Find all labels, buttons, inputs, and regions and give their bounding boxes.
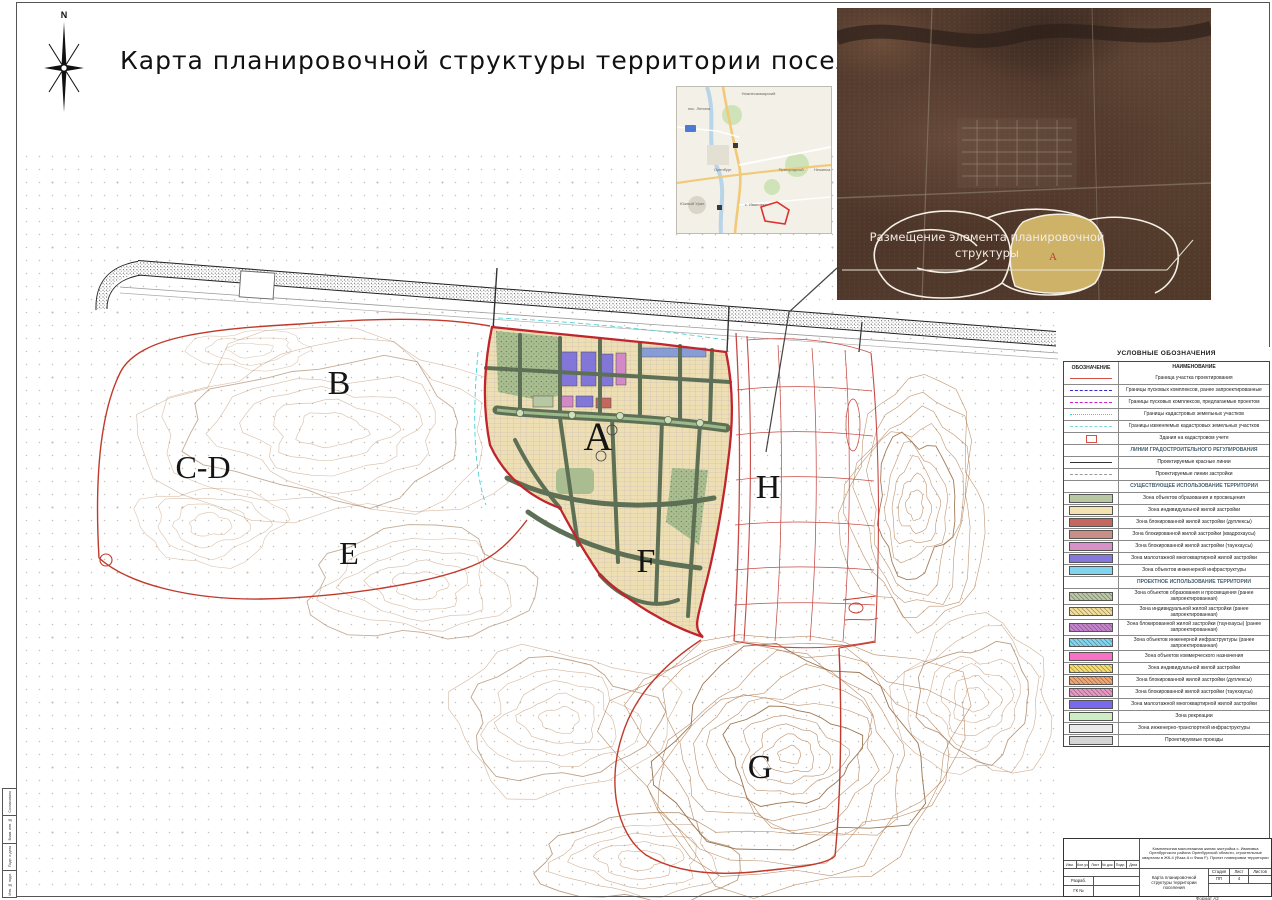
railway-underpass: [239, 271, 275, 299]
north-label: N: [61, 10, 68, 20]
legend-symbol: [1064, 493, 1119, 504]
legend-symbol: [1064, 620, 1119, 635]
legend: УСЛОВНЫЕ ОБОЗНАЧЕНИЯ ОБОЗНАЧЕНИЕ НАИМЕНО…: [1063, 347, 1270, 747]
legend-symbol: [1064, 605, 1119, 620]
legend-col-symbol: ОБОЗНАЧЕНИЕ: [1064, 362, 1119, 373]
legend-symbol: [1064, 663, 1119, 674]
legend-row: Зона индивидуальной жилой застройки: [1064, 504, 1269, 516]
legend-symbol: [1064, 373, 1119, 384]
legend-row: Границы изменяемых кадастровых земельных…: [1064, 420, 1269, 432]
stage-label: Стадия: [1209, 869, 1230, 876]
legend-symbol: [1064, 517, 1119, 528]
legend-symbol: [1064, 636, 1119, 651]
legend-symbol: [1064, 541, 1119, 552]
legend-label: Зона индивидуальной жилой застройки (ран…: [1119, 605, 1269, 620]
legend-row: Зона малоэтажной многоквартирной жилой з…: [1064, 552, 1269, 564]
legend-row: Границы пусковых комплексов, ранее запро…: [1064, 384, 1269, 396]
legend-row: Зона блокированной жилой застройки (дупл…: [1064, 516, 1269, 528]
inset-place-label: Оренбург: [714, 167, 732, 172]
zone-label-E: E: [339, 535, 359, 571]
contour-line: [296, 413, 371, 448]
legend-label: Зона блокированной жилой застройки (таун…: [1119, 541, 1269, 552]
legend-symbol: [1064, 481, 1119, 492]
gk-label: ГК №: [1064, 886, 1094, 896]
satellite-image[interactable]: А Размещение элемента планировочной стру…: [837, 8, 1211, 300]
legend-label: ЛИНИИ ГРАДОСТРОИТЕЛЬНОГО РЕГУЛИРОВАНИЯ: [1119, 445, 1269, 456]
legend-row: Зона объектов инженерной инфраструктуры …: [1064, 635, 1269, 651]
sheet-label: Лист: [1230, 869, 1249, 876]
legend-label: Проектируемые проезды: [1119, 735, 1269, 746]
contour-line: [647, 643, 949, 866]
legend-symbol: [1064, 699, 1119, 710]
legend-symbol: [1064, 469, 1119, 480]
project-name: Комплексная малоэтажная жилая застройка …: [1140, 839, 1271, 869]
legend-row: Проектируемые красные линии: [1064, 456, 1269, 468]
legend-col-name: НАИМЕНОВАНИЕ: [1119, 362, 1269, 373]
contour-line: [866, 424, 963, 596]
legend-symbol: [1064, 421, 1119, 432]
legend-row: Границы кадастровых земельных участков: [1064, 408, 1269, 420]
contour-line: [471, 656, 666, 780]
satellite-caption: Размещение элемента планировочной структ…: [837, 230, 1137, 261]
legend-section-row: СУЩЕСТВУЮЩЕЕ ИСПОЛЬЗОВАНИЕ ТЕРРИТОРИИ: [1064, 480, 1269, 492]
page-title: Карта планировочной структуры территории…: [120, 46, 920, 75]
legend-label: СУЩЕСТВУЮЩЕЕ ИСПОЛЬЗОВАНИЕ ТЕРРИТОРИИ: [1119, 481, 1269, 492]
legend-section-row: ПРОЕКТНОЕ ИСПОЛЬЗОВАНИЕ ТЕРРИТОРИИ: [1064, 576, 1269, 588]
compass-rose: N: [38, 8, 90, 118]
legend-label: Зона индивидуальной жилой застройки: [1119, 663, 1269, 674]
stamp-header-cell: № док.: [1102, 861, 1115, 869]
legend-row: Зона малоэтажной многоквартирной жилой з…: [1064, 698, 1269, 710]
contour-line: [206, 376, 435, 493]
contour-line: [927, 656, 1021, 752]
contour-line: [916, 641, 1029, 765]
legend-label: Зона инженерно-транспортной инфраструкту…: [1119, 723, 1269, 734]
zone-label-A: A: [584, 414, 613, 459]
legend-row: Зона блокированной жилой застройки (таун…: [1064, 619, 1269, 635]
stamp-header-cell: Лист: [1089, 861, 1102, 869]
side-stamp-strip: СогласованоВзам. инв. №Подп. и датаИнв. …: [2, 788, 17, 898]
contour-line: [173, 504, 251, 548]
contour-line: [906, 490, 923, 520]
legend-symbol: [1064, 445, 1119, 456]
legend-row: Зона блокированной жилой застройки (дупл…: [1064, 674, 1269, 686]
legend-row: Здания на кадастровом учете: [1064, 432, 1269, 444]
legend-symbol: [1064, 577, 1119, 588]
legend-symbol: [1064, 565, 1119, 576]
razrab-label: Разраб.: [1064, 877, 1094, 886]
legend-label: Зона малоэтажной многоквартирной жилой з…: [1119, 553, 1269, 564]
legend-section-row: ЛИНИИ ГРАДОСТРОИТЕЛЬНОГО РЕГУЛИРОВАНИЯ: [1064, 444, 1269, 456]
legend-label: Зона блокированной жилой застройки (таун…: [1119, 687, 1269, 698]
side-strip-cell: Взам. инв. №: [3, 816, 16, 843]
contour-line: [963, 687, 990, 712]
zone-label-H: H: [756, 469, 781, 506]
contour-line: [274, 399, 401, 460]
legend-symbol: [1064, 409, 1119, 420]
contour-line: [694, 685, 880, 831]
stamp-header-cell: Подп.: [1115, 861, 1128, 869]
contour-line: [625, 642, 966, 877]
legend-symbol: [1064, 687, 1119, 698]
legend-label: Зона индивидуальной жилой застройки: [1119, 505, 1269, 516]
side-strip-cell: Подп. и дата: [3, 844, 16, 871]
legend-label: ПРОЕКТНОЕ ИСПОЛЬЗОВАНИЕ ТЕРРИТОРИИ: [1119, 577, 1269, 588]
inset-place-label: пос. Ленина: [688, 106, 710, 111]
zone-label-F: F: [637, 543, 656, 580]
stamp-header-cell: Изм.: [1064, 861, 1077, 869]
inset-place-label: Южный Урал: [680, 201, 704, 206]
legend-row: Границы пусковых комплексов, предлагаемы…: [1064, 396, 1269, 408]
road-shield: [685, 125, 696, 132]
legend-symbol: [1064, 735, 1119, 746]
format-label: Формат А2: [1196, 896, 1219, 900]
contour-line: [182, 355, 458, 508]
legend-symbol: [1064, 457, 1119, 468]
stamp-header-cell: Дата: [1127, 861, 1140, 869]
legend-label: Зона объектов образования и просвещения: [1119, 493, 1269, 504]
legend-row: Зона блокированной жилой застройки (таун…: [1064, 540, 1269, 552]
legend-symbol: [1064, 675, 1119, 686]
stamp-header-cell: Кол.уч: [1077, 861, 1090, 869]
legend-symbol: [1064, 553, 1119, 564]
drawing-sheet: ABC-DEFGH N Карта планировочной структур…: [0, 0, 1272, 900]
planned-district[interactable]: [485, 327, 732, 644]
contour-line: [538, 707, 579, 734]
legend-label: Зона объектов инженерной инфраструктуры …: [1119, 636, 1269, 651]
legend-label: Зона блокированной жилой застройки (квад…: [1119, 529, 1269, 540]
sheets-value: [1249, 876, 1271, 884]
contour-line: [189, 512, 232, 536]
legend-symbol: [1064, 711, 1119, 722]
legend-row: Зона объектов образования и просвещения …: [1064, 588, 1269, 604]
legend-row: Зона объектов образования и просвещения: [1064, 492, 1269, 504]
legend-row: Зона рекреации: [1064, 710, 1269, 722]
legend-header-row: ОБОЗНАЧЕНИЕ НАИМЕНОВАНИЕ: [1064, 362, 1269, 373]
legend-symbol: [1064, 433, 1119, 444]
legend-label: Зона блокированной жилой застройки (дупл…: [1119, 675, 1269, 686]
zone-label-C-D: C-D: [175, 449, 230, 485]
inset-location-map[interactable]: Нижнесакмарскийпос. ЛенинаОренбургПригор…: [676, 86, 832, 234]
contour-line: [892, 456, 941, 544]
legend-label: Проектируемые линии застройки: [1119, 469, 1269, 480]
contour-line: [516, 693, 595, 744]
legend-symbol: [1064, 385, 1119, 396]
legend-label: Зона малоэтажной многоквартирной жилой з…: [1119, 699, 1269, 710]
zone-label-B: B: [328, 365, 351, 402]
legend-label: Здания на кадастровом учете: [1119, 433, 1269, 444]
contour-line: [593, 842, 684, 880]
legend-label: Проектируемые красные линии: [1119, 457, 1269, 468]
legend-symbol: [1064, 651, 1119, 662]
legend-symbol: [1064, 505, 1119, 516]
contour-line: [877, 432, 955, 580]
inset-place-label: Пригородный: [779, 167, 804, 172]
side-strip-cell: Согласовано: [3, 789, 16, 816]
legend-label: Зона объектов коммерческого назначения: [1119, 651, 1269, 662]
satellite-leader-line: [766, 268, 837, 452]
sheet-value: 4: [1230, 876, 1249, 884]
legend-symbol: [1064, 529, 1119, 540]
stage-value: ПП: [1209, 876, 1230, 884]
legend-table: ОБОЗНАЧЕНИЕ НАИМЕНОВАНИЕ Граница участка…: [1063, 361, 1270, 747]
contour-line: [134, 488, 290, 568]
legend-symbol: [1064, 397, 1119, 408]
contour-line: [954, 675, 1003, 723]
contour-line: [162, 338, 483, 514]
legend-label: Зона объектов инженерной инфраструктуры: [1119, 565, 1269, 576]
zone-label-G: G: [748, 749, 773, 786]
contour-line: [205, 338, 291, 365]
contour-line: [364, 560, 468, 610]
legend-row: Проектируемые проезды: [1064, 734, 1269, 746]
side-strip-cell: Инв. № подл.: [3, 871, 16, 897]
sheets-label: Листов: [1249, 869, 1271, 876]
contour-line: [838, 374, 985, 633]
inset-place-label: с. Ивановка: [745, 202, 767, 207]
legend-symbol: [1064, 723, 1119, 734]
legend-label: Граница участка проектирования: [1119, 373, 1269, 384]
contour-line: [494, 680, 616, 756]
contour-line: [777, 745, 800, 764]
legend-row: Зона индивидуальной жилой застройки: [1064, 662, 1269, 674]
legend-row: Зона индивидуальной жилой застройки (ран…: [1064, 604, 1269, 620]
legend-title: УСЛОВНЫЕ ОБОЗНАЧЕНИЯ: [1063, 347, 1270, 361]
legend-label: Зона рекреации: [1119, 711, 1269, 722]
legend-symbol: [1064, 589, 1119, 604]
sheet-title: Карта планировочной структуры территории…: [1140, 869, 1209, 896]
contour-line: [898, 473, 931, 534]
legend-label: Зона блокированной жилой застройки (дупл…: [1119, 517, 1269, 528]
contour-line: [225, 343, 273, 358]
legend-label: Границы пусковых комплексов, ранее запро…: [1119, 385, 1269, 396]
legend-label: Границы изменяемых кадастровых земельных…: [1119, 421, 1269, 432]
inset-place-label: Нежинка: [814, 167, 830, 172]
contour-line: [448, 644, 682, 799]
contour-line: [884, 441, 948, 563]
legend-row: Зона объектов инженерной инфраструктуры: [1064, 564, 1269, 576]
legend-row: Зона объектов коммерческого назначения: [1064, 650, 1269, 662]
inset-place-label: Нижнесакмарский: [742, 91, 776, 96]
legend-label: Границы кадастровых земельных участков: [1119, 409, 1269, 420]
legend-row: Граница участка проектирования: [1064, 373, 1269, 384]
legend-label: Зона блокированной жилой застройки (таун…: [1119, 620, 1269, 635]
legend-label: Зона объектов образования и просвещения …: [1119, 589, 1269, 604]
contour-line: [723, 706, 863, 806]
legend-row: Зона блокированной жилой застройки (таун…: [1064, 686, 1269, 698]
legend-row: Проектируемые линии застройки: [1064, 468, 1269, 480]
legend-label: Границы пусковых комплексов, предлагаемы…: [1119, 397, 1269, 408]
legend-row: Зона инженерно-транспортной инфраструкту…: [1064, 722, 1269, 734]
title-block: Изм.Кол.учЛист№ док.Подп.Дата Разраб. ГК…: [1063, 838, 1272, 897]
legend-row: Зона блокированной жилой застройки (квад…: [1064, 528, 1269, 540]
